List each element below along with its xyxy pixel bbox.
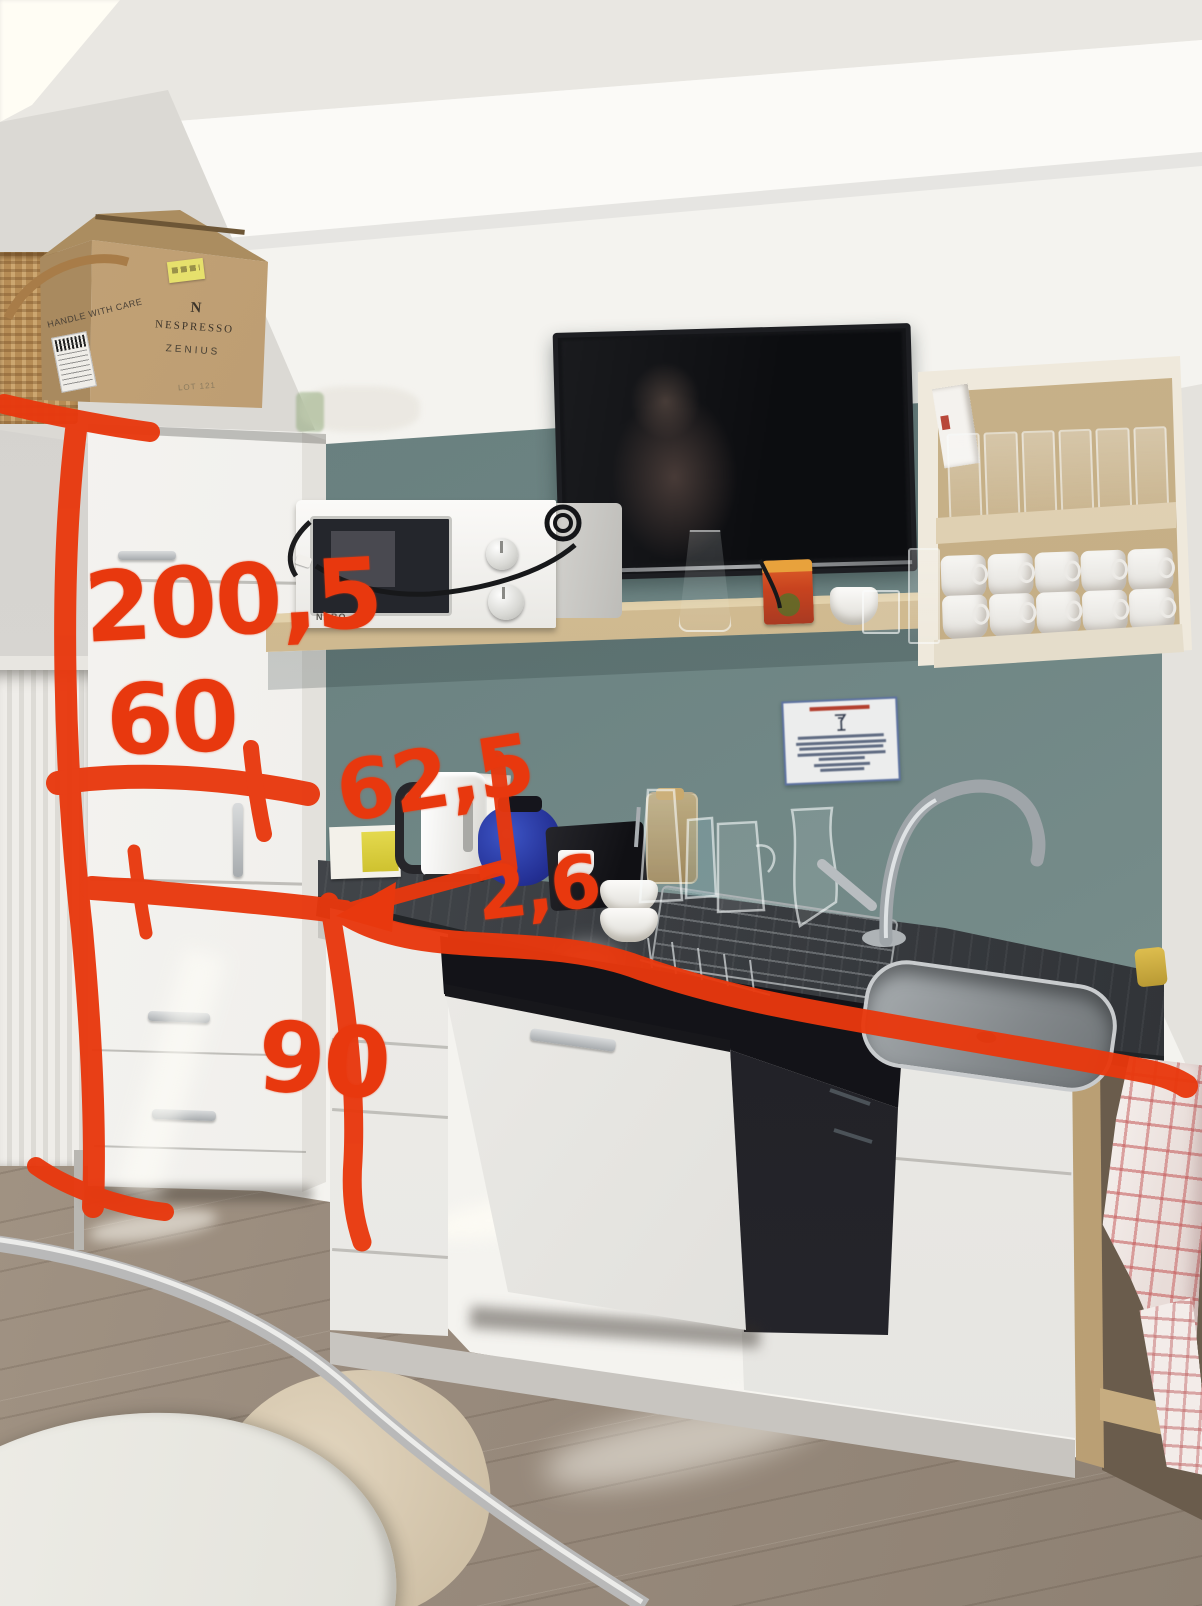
kitchen-photo: N NESPRESSO ZENIUS HANDLE WITH CARE LOT … [0, 0, 1202, 1606]
annotation-width-line [58, 777, 308, 794]
annotation-counter-line [92, 888, 1186, 1086]
measurement-cabinet-height: 200,5 [81, 536, 383, 664]
annotation-height-line [65, 430, 94, 1207]
measurement-counter-thickness: 2,6 [471, 839, 604, 938]
measurement-base-height: 90 [254, 1000, 393, 1122]
measurement-cabinet-width: 60 [104, 660, 239, 778]
annotation-width-tick [251, 748, 264, 834]
annotation-top-tick [4, 404, 150, 432]
measurement-annotations [0, 0, 1202, 1606]
